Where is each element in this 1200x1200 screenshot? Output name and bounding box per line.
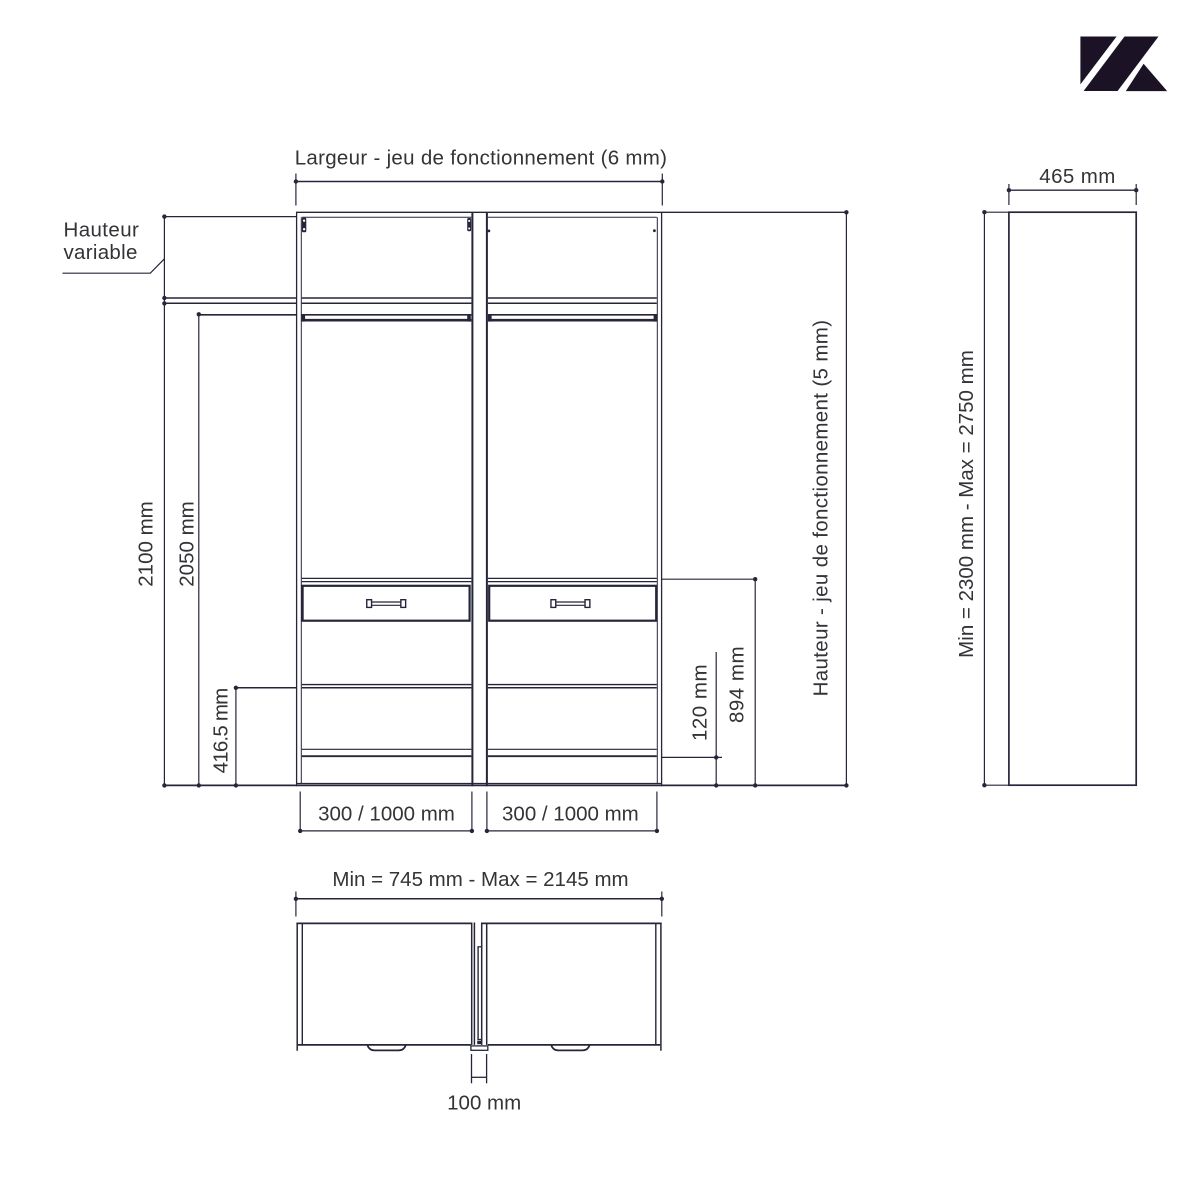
svg-text:120 mm: 120 mm	[689, 664, 712, 741]
svg-text:465 mm: 465 mm	[1039, 165, 1115, 188]
svg-text:Hauteur: Hauteur	[64, 218, 140, 241]
svg-text:100 mm: 100 mm	[447, 1092, 521, 1115]
svg-text:Min = 2300 mm - Max = 2750 mm: Min = 2300 mm - Max = 2750 mm	[955, 350, 978, 658]
svg-text:variable: variable	[64, 241, 138, 264]
svg-text:Min = 745 mm - Max = 2145 mm: Min = 745 mm - Max = 2145 mm	[332, 868, 628, 891]
svg-text:416.5 mm: 416.5 mm	[210, 689, 233, 774]
svg-text:894 mm: 894 mm	[726, 646, 749, 723]
svg-text:2050 mm: 2050 mm	[176, 501, 199, 586]
svg-text:Hauteur - jeu de fonctionnemen: Hauteur - jeu de fonctionnement (5 mm)	[810, 320, 833, 697]
svg-text:Largeur - jeu de fonctionnemen: Largeur - jeu de fonctionnement (6 mm)	[295, 146, 668, 169]
svg-text:300 / 1000 mm: 300 / 1000 mm	[318, 802, 455, 825]
svg-text:300 / 1000 mm: 300 / 1000 mm	[502, 802, 639, 825]
svg-text:2100 mm: 2100 mm	[135, 501, 158, 586]
